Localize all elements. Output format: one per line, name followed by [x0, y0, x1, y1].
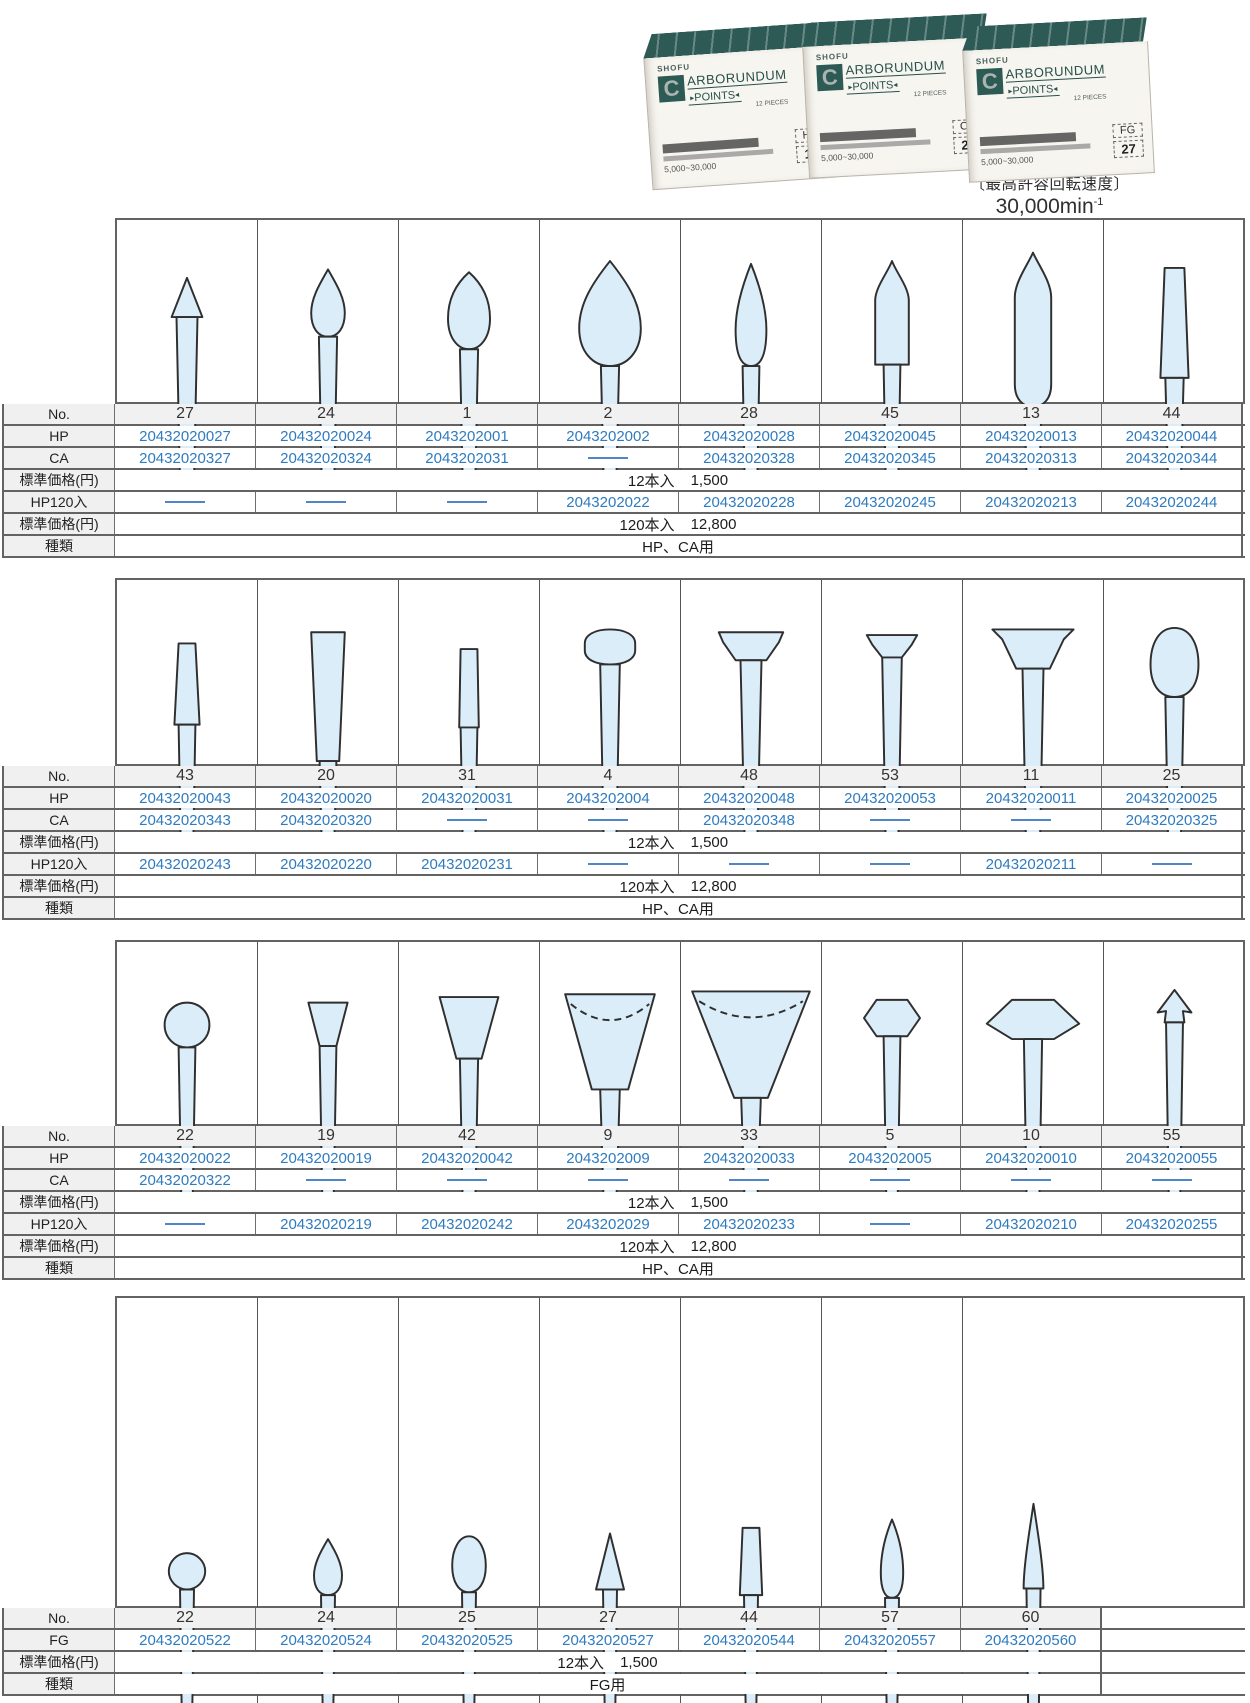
table-row-price12: 標準価格(円)12本入1,500	[2, 1192, 1245, 1214]
product-code-link[interactable]: 20432020042	[397, 1148, 538, 1168]
chip-type-label: FG	[1112, 123, 1143, 139]
table-row-hp120: HP120入2043202022204320202282043202024520…	[2, 492, 1245, 514]
kind-value: HP、CA用	[115, 1258, 1243, 1278]
product-code-link[interactable]: 20432020348	[679, 810, 820, 830]
price-cell: 120本入12,800	[115, 1236, 1243, 1256]
empty-code-cell	[538, 1170, 679, 1190]
price-value: 12,800	[691, 1238, 737, 1255]
row-label-hp120: HP120入	[2, 492, 115, 512]
product-code-link[interactable]: 2043202002	[538, 426, 679, 446]
logo-c-icon: C	[816, 64, 843, 91]
product-code-link[interactable]: 2043202004	[538, 788, 679, 808]
point-number: 25	[1102, 766, 1243, 786]
speed-note: 5,000~30,000	[981, 151, 1091, 167]
row-label-kind: 種類	[2, 536, 115, 556]
product-code-link[interactable]: 20432020022	[115, 1148, 256, 1168]
type-chip: FG 27	[1112, 123, 1144, 159]
price-value: 12,800	[691, 516, 737, 533]
point-number: 42	[397, 1126, 538, 1146]
product-code-link[interactable]: 20432020043	[115, 788, 256, 808]
row-label-hp: HP	[2, 1148, 115, 1168]
table-row-hp: HP20432020027204320200242043202001204320…	[2, 426, 1245, 448]
table-row-ca: CA20432020322	[2, 1170, 1245, 1192]
row-label-kind: 種類	[2, 1674, 115, 1694]
point-number: 4	[538, 766, 679, 786]
row-label-price120: 標準価格(円)	[2, 876, 115, 896]
empty-code-cell	[1102, 854, 1243, 874]
product-code-link[interactable]: 20432020243	[115, 854, 256, 874]
product-code-link[interactable]: 20432020044	[1102, 426, 1243, 446]
empty-code-cell	[961, 1170, 1102, 1190]
product-code-link[interactable]: 20432020527	[538, 1630, 679, 1650]
product-code-link[interactable]: 20432020213	[961, 492, 1102, 512]
table-row-no: No.22194293351055	[2, 1126, 1245, 1148]
table-row-fg: FG20432020522204320205242043202052520432…	[2, 1630, 1245, 1652]
table-row-ca: CA20432020343204320203202043202034820432…	[2, 810, 1245, 832]
empty-code-cell	[256, 1170, 397, 1190]
point-number: 22	[115, 1608, 256, 1628]
row-label-no: No.	[2, 1126, 115, 1146]
table-row-no: No.22242527445760	[2, 1608, 1245, 1630]
product-code-link[interactable]: 20432020328	[679, 448, 820, 468]
pack-quantity: 12本入	[628, 1192, 675, 1212]
price-cell: 120本入12,800	[115, 514, 1243, 534]
shape-row	[115, 218, 1245, 404]
point-number: 28	[679, 404, 820, 424]
empty-code-cell	[538, 448, 679, 468]
empty-code-cell	[820, 810, 961, 830]
product-code-link[interactable]: 2043202031	[397, 448, 538, 468]
product-code-link[interactable]: 20432020020	[256, 788, 397, 808]
product-code-link[interactable]: 20432020013	[961, 426, 1102, 446]
logo-c-icon: C	[976, 68, 1003, 95]
price-value: 1,500	[691, 834, 729, 851]
product-code-link[interactable]: 20432020242	[397, 1214, 538, 1234]
price-cell: 12本入1,500	[115, 832, 1243, 852]
product-code-link[interactable]: 20432020033	[679, 1148, 820, 1168]
not-available-dash	[447, 819, 487, 821]
point-number: 2	[538, 404, 679, 424]
logo-c-icon: C	[658, 75, 686, 103]
title-line1: ARBORUNDUM	[1005, 63, 1105, 83]
points-table-hp-ca-3: No.22194293351055HP204320200222043202001…	[2, 940, 1245, 1280]
point-number: 22	[115, 1126, 256, 1146]
point-number: 27	[538, 1608, 679, 1628]
point-number: 48	[679, 766, 820, 786]
table-row-hp120: HP120入2043202021920432020242204320202920…	[2, 1214, 1245, 1236]
point-number: 44	[679, 1608, 820, 1628]
price-cell: 12本入1,500	[115, 470, 1243, 490]
row-label-kind: 種類	[2, 898, 115, 918]
point-number: 20	[256, 766, 397, 786]
pack-quantity: 12本入	[628, 832, 675, 852]
point-number: 55	[1102, 1126, 1243, 1146]
point-number: 27	[115, 404, 256, 424]
empty-code-cell	[820, 1214, 961, 1234]
table-row-price120: 標準価格(円)120本入12,800	[2, 1236, 1245, 1258]
point-number: 10	[961, 1126, 1102, 1146]
product-code-link[interactable]: 20432020025	[1102, 788, 1243, 808]
point-number: 19	[256, 1126, 397, 1146]
row-label-hp: HP	[2, 426, 115, 446]
table-row-price120: 標準価格(円)120本入12,800	[2, 876, 1245, 898]
title-line2: ▸POINTS◂	[846, 79, 900, 95]
title-line2: ▸POINTS◂	[1006, 83, 1060, 99]
price-cell: 120本入12,800	[115, 876, 1243, 896]
not-available-dash	[165, 501, 205, 503]
row-label-ca: CA	[2, 1170, 115, 1190]
not-available-dash	[588, 457, 628, 459]
product-code-link[interactable]: 20432020557	[820, 1630, 961, 1650]
empty-code-cell	[397, 810, 538, 830]
not-available-dash	[729, 1179, 769, 1181]
not-available-dash	[165, 1223, 205, 1225]
product-code-link[interactable]: 20432020255	[1102, 1214, 1243, 1234]
empty-code-cell	[1102, 1170, 1243, 1190]
point-number: 53	[820, 766, 961, 786]
empty-code-cell	[538, 810, 679, 830]
title-line1: ARBORUNDUM	[845, 59, 945, 79]
not-available-dash	[870, 1223, 910, 1225]
point-number: 13	[961, 404, 1102, 424]
table-row-price12: 標準価格(円)12本入1,500	[2, 470, 1245, 492]
row-label-hp120: HP120入	[2, 1214, 115, 1234]
product-code-link[interactable]: 20432020211	[961, 854, 1102, 874]
shape-row	[115, 1296, 1245, 1608]
product-code-link[interactable]: 20432020322	[115, 1170, 256, 1190]
product-code-link[interactable]: 20432020324	[256, 448, 397, 468]
shape-row	[115, 578, 1245, 766]
speed-note: 5,000~30,000	[821, 147, 931, 163]
product-code-link[interactable]: 20432020544	[679, 1630, 820, 1650]
price-value: 1,500	[691, 1194, 729, 1211]
table-row-hp120: HP120入2043202024320432020220204320202312…	[2, 854, 1245, 876]
row-label-fg: FG	[2, 1630, 115, 1650]
product-code-link[interactable]: 20432020219	[256, 1214, 397, 1234]
point-number: 45	[820, 404, 961, 424]
product-code-link[interactable]: 2043202001	[397, 426, 538, 446]
product-box-fg: SHOFU C ARBORUNDUM ▸POINTS◂ 12 PIECES 5,…	[961, 17, 1155, 185]
product-code-link[interactable]: 20432020344	[1102, 448, 1243, 468]
product-code-link[interactable]: 20432020019	[256, 1148, 397, 1168]
product-code-link[interactable]: 20432020327	[115, 448, 256, 468]
product-code-link[interactable]: 2043202005	[820, 1148, 961, 1168]
pack-quantity: 120本入	[620, 876, 675, 896]
price-value: 1,500	[691, 472, 729, 489]
product-code-link[interactable]: 20432020028	[679, 426, 820, 446]
point-number: 60	[961, 1608, 1102, 1628]
product-code-link[interactable]: 20432020048	[679, 788, 820, 808]
product-code-link[interactable]: 20432020055	[1102, 1148, 1243, 1168]
not-available-dash	[729, 863, 769, 865]
row-label-no: No.	[2, 404, 115, 424]
product-code-link[interactable]: 20432020210	[961, 1214, 1102, 1234]
table-row-kind: 種類HP、CA用	[2, 898, 1245, 920]
row-label-hp120: HP120入	[2, 854, 115, 874]
point-number: 57	[820, 1608, 961, 1628]
usage-notes: 5,000~30,000	[980, 131, 1091, 167]
point-number: 11	[961, 766, 1102, 786]
title-line1: ARBORUNDUM	[687, 68, 787, 90]
product-code-link[interactable]: 20432020011	[961, 788, 1102, 808]
not-available-dash	[1011, 819, 1051, 821]
product-title: ARBORUNDUM ▸POINTS◂ 12 PIECES	[687, 68, 789, 114]
row-label-no: No.	[2, 766, 115, 786]
table-row-no: No.432031448531125	[2, 766, 1245, 788]
not-available-dash	[588, 1179, 628, 1181]
product-code-link[interactable]: 20432020313	[961, 448, 1102, 468]
product-code-link[interactable]: 2043202022	[538, 492, 679, 512]
product-code-link[interactable]: 2043202029	[538, 1214, 679, 1234]
product-code-link[interactable]: 20432020027	[115, 426, 256, 446]
price-value: 12,800	[691, 878, 737, 895]
point-number: 44	[1102, 404, 1243, 424]
product-code-link[interactable]: 20432020245	[820, 492, 961, 512]
points-table-fg: No.22242527445760FG204320205222043202052…	[2, 1296, 1245, 1696]
empty-code-cell	[820, 854, 961, 874]
row-label-price12: 標準価格(円)	[2, 832, 115, 852]
product-code-link[interactable]: 20432020010	[961, 1148, 1102, 1168]
product-title: ARBORUNDUM ▸POINTS◂ 12 PIECES	[1005, 63, 1107, 107]
empty-code-cell	[538, 854, 679, 874]
not-available-dash	[588, 863, 628, 865]
empty-code-cell	[115, 1214, 256, 1234]
product-title: ARBORUNDUM ▸POINTS◂ 12 PIECES	[845, 59, 947, 103]
product-code-link[interactable]: 20432020244	[1102, 492, 1243, 512]
price-cell: 12本入1,500	[115, 1652, 1102, 1672]
empty-code-cell	[820, 1170, 961, 1190]
point-number: 9	[538, 1126, 679, 1146]
row-label-price120: 標準価格(円)	[2, 1236, 115, 1256]
table-row-no: No.27241228451344	[2, 404, 1245, 426]
product-code-link[interactable]: 20432020053	[820, 788, 961, 808]
empty-code-cell	[961, 810, 1102, 830]
product-code-link[interactable]: 20432020024	[256, 426, 397, 446]
product-code-link[interactable]: 20432020233	[679, 1214, 820, 1234]
table-row-kind: 種類HP、CA用	[2, 536, 1245, 558]
usage-notes: 5,000~30,000	[662, 137, 774, 175]
not-available-dash	[1011, 1179, 1051, 1181]
price-cell: 12本入1,500	[115, 1192, 1243, 1212]
row-label-price12: 標準価格(円)	[2, 1652, 115, 1672]
empty-code-cell	[397, 1170, 538, 1190]
kind-value: HP、CA用	[115, 536, 1243, 556]
product-code-link[interactable]: 20432020325	[1102, 810, 1243, 830]
product-code-link[interactable]: 20432020220	[256, 854, 397, 874]
empty-code-cell	[397, 492, 538, 512]
not-available-dash	[306, 501, 346, 503]
product-code-link[interactable]: 20432020231	[397, 854, 538, 874]
table-row-price12: 標準価格(円)12本入1,500	[2, 832, 1245, 854]
not-available-dash	[447, 1179, 487, 1181]
product-code-link[interactable]: 20432020045	[820, 426, 961, 446]
product-photo: SHOFU C ARBORUNDUM ▸POINTS◂ 12 PIECES 5,…	[645, 8, 1157, 204]
point-number: 5	[820, 1126, 961, 1146]
pack-quantity: 12本入	[628, 470, 675, 490]
not-available-dash	[870, 819, 910, 821]
row-label-kind: 種類	[2, 1258, 115, 1278]
pack-quantity: 120本入	[620, 1236, 675, 1256]
shape-row	[115, 940, 1245, 1126]
row-label-price120: 標準価格(円)	[2, 514, 115, 534]
table-row-price12: 標準価格(円)12本入1,500	[2, 1652, 1245, 1674]
product-code-link[interactable]: 20432020228	[679, 492, 820, 512]
pack-quantity: 120本入	[620, 514, 675, 534]
point-number: 43	[115, 766, 256, 786]
product-code-link[interactable]: 20432020031	[397, 788, 538, 808]
point-number: 33	[679, 1126, 820, 1146]
row-label-no: No.	[2, 1608, 115, 1628]
pack-quantity: 12本入	[557, 1652, 604, 1672]
point-number: 25	[397, 1608, 538, 1628]
max-speed-value: 30,000min-1	[942, 195, 1157, 219]
row-label-ca: CA	[2, 810, 115, 830]
points-table-hp-ca-2: No.432031448531125HP20432020043204320200…	[2, 578, 1245, 920]
kind-value: HP、CA用	[115, 898, 1243, 918]
row-label-hp: HP	[2, 788, 115, 808]
empty-code-cell	[115, 492, 256, 512]
not-available-dash	[306, 1179, 346, 1181]
catalog-page: SHOFU C ARBORUNDUM ▸POINTS◂ 12 PIECES 5,…	[0, 0, 1250, 1703]
row-label-price12: 標準価格(円)	[2, 1192, 115, 1212]
product-code-link[interactable]: 2043202009	[538, 1148, 679, 1168]
not-available-dash	[447, 501, 487, 503]
product-code-link[interactable]: 20432020345	[820, 448, 961, 468]
table-row-hp: HP20432020043204320200202043202003120432…	[2, 788, 1245, 810]
product-code-link[interactable]: 20432020320	[256, 810, 397, 830]
table-row-hp: HP20432020022204320200192043202004220432…	[2, 1148, 1245, 1170]
point-number: 1	[397, 404, 538, 424]
empty-code-cell	[256, 492, 397, 512]
table-row-ca: CA20432020327204320203242043202031204320…	[2, 448, 1245, 470]
points-table-hp-ca-1: No.27241228451344HP204320200272043202002…	[2, 218, 1245, 558]
row-label-ca: CA	[2, 448, 115, 468]
table-row-kind: 種類HP、CA用	[2, 1258, 1245, 1280]
not-available-dash	[870, 863, 910, 865]
product-code-link[interactable]: 20432020560	[961, 1630, 1102, 1650]
not-available-dash	[1152, 1179, 1192, 1181]
point-number: 24	[256, 1608, 397, 1628]
table-row-price120: 標準価格(円)120本入12,800	[2, 514, 1245, 536]
product-code-link[interactable]: 20432020524	[256, 1630, 397, 1650]
empty-code-cell	[679, 854, 820, 874]
row-label-price12: 標準価格(円)	[2, 470, 115, 490]
usage-notes: 5,000~30,000	[820, 127, 931, 163]
chip-number: 27	[1113, 140, 1144, 159]
point-number: 31	[397, 766, 538, 786]
price-value: 1,500	[620, 1654, 658, 1671]
point-number: 24	[256, 404, 397, 424]
not-available-dash	[588, 819, 628, 821]
kind-value: FG用	[115, 1674, 1102, 1694]
not-available-dash	[1152, 863, 1192, 865]
product-code-link[interactable]: 20432020522	[115, 1630, 256, 1650]
empty-code-cell	[679, 1170, 820, 1190]
product-code-link[interactable]: 20432020525	[397, 1630, 538, 1650]
table-row-kind: 種類FG用	[2, 1674, 1245, 1696]
product-code-link[interactable]: 20432020343	[115, 810, 256, 830]
not-available-dash	[870, 1179, 910, 1181]
box-face: SHOFU C ARBORUNDUM ▸POINTS◂ 12 PIECES 5,…	[962, 41, 1155, 183]
